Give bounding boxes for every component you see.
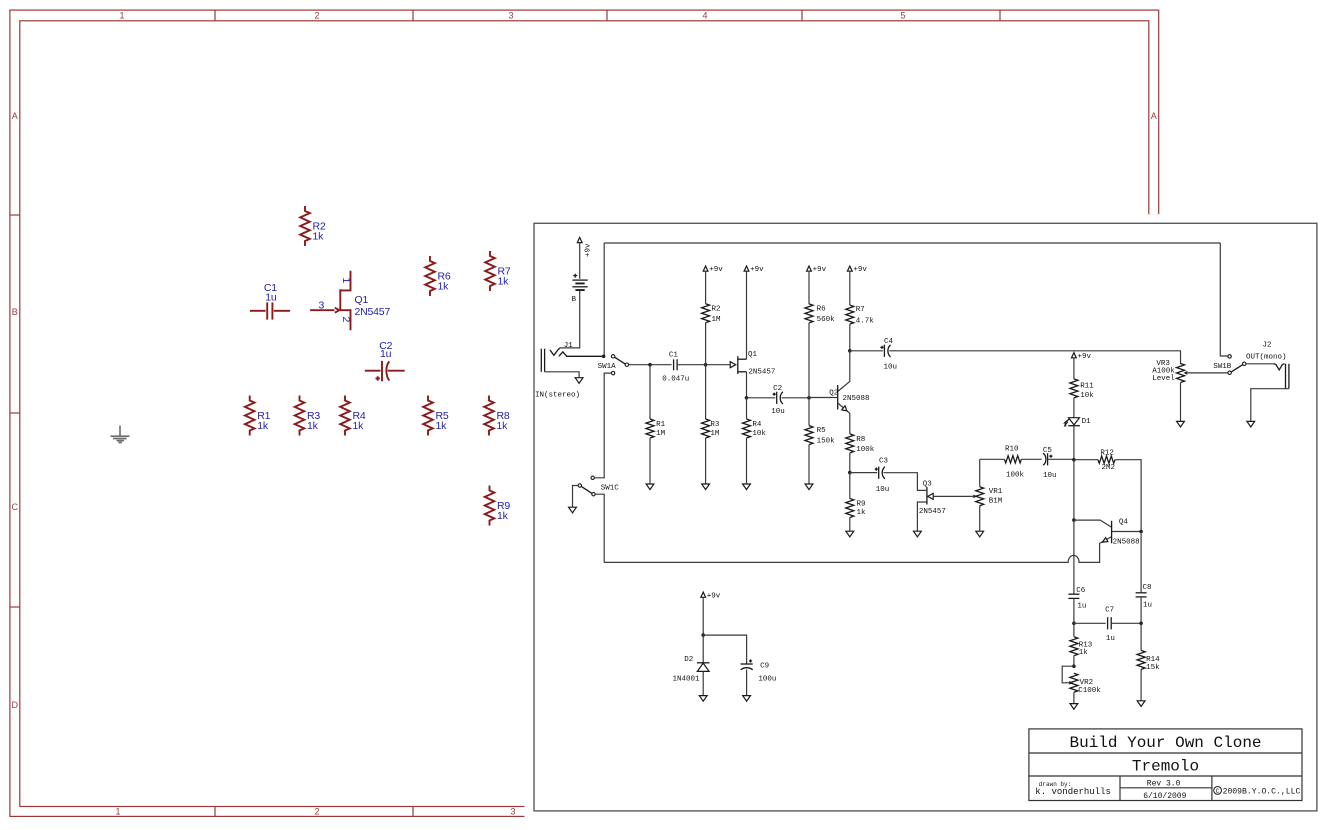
svg-text:1k: 1k (857, 509, 867, 517)
svg-text:D2: D2 (684, 656, 693, 664)
svg-text:0.047u: 0.047u (662, 375, 689, 383)
svg-text:R6: R6 (817, 306, 827, 314)
svg-text:+9v: +9v (813, 266, 827, 274)
svg-text:1M: 1M (710, 430, 720, 438)
svg-text:10u: 10u (884, 363, 898, 371)
svg-text:D: D (12, 700, 19, 710)
svg-text:1: 1 (119, 10, 124, 20)
svg-text:A: A (1151, 111, 1157, 121)
svg-text:C3: C3 (879, 457, 889, 465)
svg-text:1k: 1k (498, 276, 510, 288)
svg-text:C100k: C100k (1078, 687, 1101, 695)
svg-text:Q4: Q4 (1119, 519, 1129, 527)
svg-text:1u: 1u (380, 348, 392, 360)
svg-text:3: 3 (319, 300, 325, 312)
svg-text:A: A (12, 111, 18, 121)
svg-text:10u: 10u (876, 486, 890, 494)
svg-text:4: 4 (702, 10, 707, 20)
svg-text:1k: 1k (438, 281, 450, 293)
svg-text:Build Your Own Clone: Build Your Own Clone (1069, 734, 1261, 752)
svg-text:C6: C6 (1076, 587, 1086, 595)
svg-text:R14: R14 (1146, 656, 1160, 664)
svg-text:1N4001: 1N4001 (673, 675, 701, 683)
svg-text:2N5457: 2N5457 (355, 306, 391, 318)
svg-text:2: 2 (340, 317, 352, 323)
svg-text:C2: C2 (773, 385, 782, 393)
svg-text:10u: 10u (1043, 472, 1057, 480)
svg-text:R4: R4 (752, 421, 762, 429)
svg-text:1k: 1k (353, 420, 365, 432)
svg-text:C: C (1216, 788, 1220, 795)
svg-text:10u: 10u (771, 408, 785, 416)
svg-text:IN(stereo): IN(stereo) (535, 392, 580, 400)
svg-text:1k: 1k (497, 420, 509, 432)
svg-text:100k: 100k (1006, 471, 1025, 479)
svg-text:R10: R10 (1005, 446, 1019, 454)
svg-text:Q1: Q1 (748, 351, 758, 359)
svg-text:R1: R1 (656, 421, 666, 429)
svg-text:C7: C7 (1105, 607, 1114, 615)
svg-text:SW1C: SW1C (601, 485, 620, 493)
svg-text:4.7k: 4.7k (856, 318, 875, 326)
svg-text:R11: R11 (1080, 382, 1094, 390)
svg-text:R8: R8 (856, 436, 865, 444)
svg-text:1k: 1k (497, 510, 509, 522)
svg-text:5: 5 (900, 10, 905, 20)
svg-text:560k: 560k (817, 316, 836, 324)
svg-text:C1: C1 (669, 352, 679, 360)
svg-text:3: 3 (508, 10, 513, 20)
svg-text:R7: R7 (856, 306, 865, 314)
svg-text:150k: 150k (817, 438, 836, 446)
svg-text:Rev 3.0: Rev 3.0 (1147, 780, 1181, 789)
svg-text:Level: Level (1152, 375, 1175, 383)
svg-text:+9v: +9v (709, 266, 723, 274)
svg-text:k. vonderhulls: k. vonderhulls (1035, 787, 1111, 797)
svg-text:1u: 1u (1077, 603, 1086, 611)
svg-text:1u: 1u (1143, 602, 1152, 610)
svg-text:+9v: +9v (853, 266, 867, 274)
svg-text:1M: 1M (656, 430, 666, 438)
svg-text:Q3: Q3 (923, 481, 933, 489)
svg-text:+9v: +9v (707, 592, 721, 600)
svg-text:C4: C4 (884, 338, 894, 346)
svg-text:1: 1 (340, 278, 352, 284)
svg-text:2N5088: 2N5088 (1113, 538, 1140, 546)
svg-text:C: C (12, 502, 19, 512)
svg-text:1u: 1u (1106, 635, 1115, 643)
svg-text:2: 2 (314, 806, 319, 816)
svg-text:Q1: Q1 (355, 294, 369, 306)
svg-text:R2: R2 (712, 306, 721, 314)
svg-text:1k: 1k (257, 420, 269, 432)
svg-text:100k: 100k (856, 446, 875, 454)
svg-text:+9v: +9v (585, 243, 593, 257)
svg-text:J2: J2 (1263, 341, 1272, 349)
svg-text:10k: 10k (752, 430, 766, 438)
svg-text:1k: 1k (1079, 649, 1089, 657)
svg-text:R5: R5 (817, 427, 827, 435)
svg-text:+9v: +9v (750, 266, 764, 274)
svg-text:SW1A: SW1A (598, 363, 617, 371)
svg-text:1u: 1u (265, 292, 277, 304)
svg-text:R3: R3 (710, 421, 720, 429)
svg-text:VR1: VR1 (989, 488, 1003, 496)
svg-text:3: 3 (510, 806, 515, 816)
svg-text:B: B (12, 307, 18, 317)
svg-text:1: 1 (115, 806, 120, 816)
svg-text:1k: 1k (307, 420, 319, 432)
svg-text:Q2: Q2 (829, 390, 838, 398)
svg-text:2N5088: 2N5088 (843, 395, 870, 403)
svg-text:+9v: +9v (1078, 353, 1092, 361)
svg-text:SW1B: SW1B (1213, 363, 1232, 371)
svg-text:1k: 1k (436, 420, 448, 432)
svg-text:15k: 15k (1146, 664, 1160, 672)
svg-text:B1M: B1M (989, 498, 1003, 506)
svg-text:D1: D1 (1082, 418, 1092, 426)
svg-text:R12: R12 (1100, 450, 1114, 458)
svg-text:Tremolo: Tremolo (1132, 758, 1199, 776)
svg-text:2N5457: 2N5457 (748, 369, 775, 377)
svg-text:C8: C8 (1143, 584, 1152, 592)
svg-text:2: 2 (314, 10, 319, 20)
svg-text:C5: C5 (1043, 447, 1053, 455)
svg-text:2N5457: 2N5457 (919, 508, 946, 516)
svg-text:10k: 10k (1080, 392, 1094, 400)
svg-text:B: B (572, 296, 577, 304)
svg-text:100u: 100u (758, 675, 776, 683)
svg-text:R9: R9 (857, 501, 866, 509)
svg-text:2009B.Y.O.C.,LLC: 2009B.Y.O.C.,LLC (1223, 787, 1301, 796)
svg-text:6/10/2009: 6/10/2009 (1143, 792, 1186, 801)
svg-text:J1: J1 (564, 342, 574, 350)
svg-text:2M2: 2M2 (1102, 464, 1116, 472)
svg-text:1k: 1k (313, 231, 325, 243)
svg-text:1M: 1M (712, 316, 722, 324)
svg-text:OUT(mono): OUT(mono) (1246, 354, 1287, 362)
svg-text:C9: C9 (760, 663, 769, 671)
svg-text:VR2: VR2 (1080, 679, 1094, 687)
